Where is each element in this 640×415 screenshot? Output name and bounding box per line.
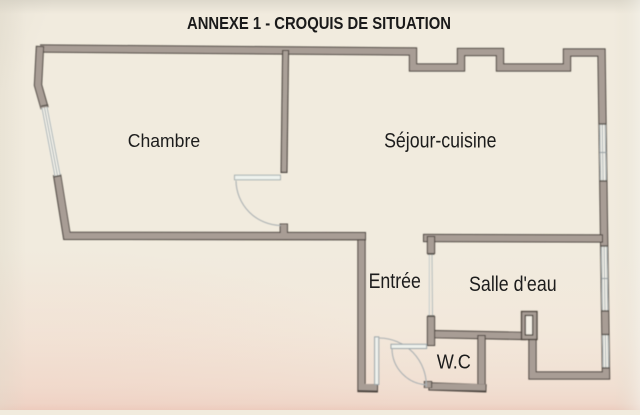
svg-text:Entrée: Entrée	[369, 269, 421, 293]
svg-text:Séjour-cuisine: Séjour-cuisine	[384, 129, 496, 152]
svg-text:ANNEXE 1 - CROQUIS DE SITUATIO: ANNEXE 1 - CROQUIS DE SITUATION	[187, 13, 451, 33]
svg-text:W.C: W.C	[437, 352, 471, 374]
svg-text:Salle d'eau: Salle d'eau	[469, 273, 557, 296]
svg-text:Chambre: Chambre	[128, 130, 200, 151]
